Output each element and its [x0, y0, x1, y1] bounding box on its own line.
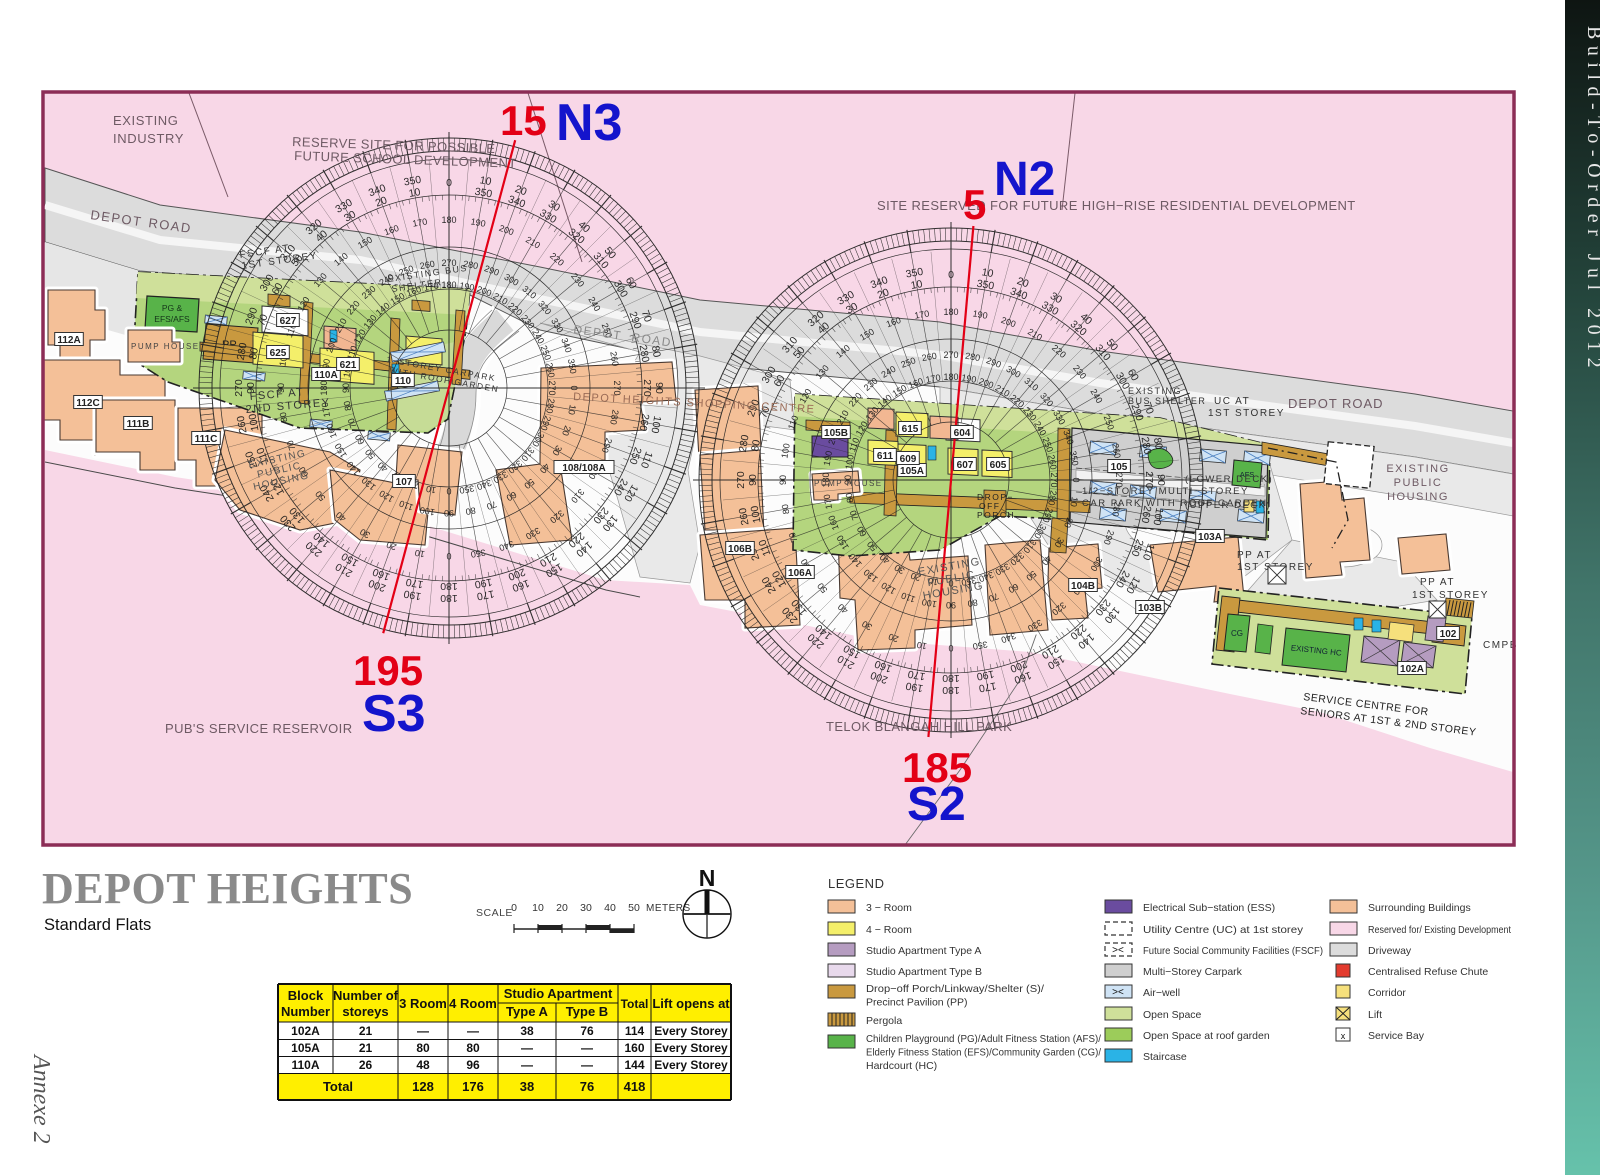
svg-text:Reserved for/ Existing Develop: Reserved for/ Existing Development: [1368, 924, 1511, 936]
svg-text:110: 110: [395, 376, 412, 387]
svg-text:96: 96: [466, 1058, 480, 1072]
svg-text:Standard Flats: Standard Flats: [44, 916, 151, 934]
svg-text:110A: 110A: [291, 1058, 319, 1072]
svg-text:Pergola: Pergola: [866, 1015, 902, 1027]
svg-text:10: 10: [532, 902, 544, 914]
svg-text:107: 107: [396, 477, 413, 488]
svg-text:Studio Apartment Type B: Studio Apartment Type B: [866, 966, 982, 978]
svg-text:105A: 105A: [900, 466, 924, 477]
svg-text:0: 0: [948, 269, 954, 281]
svg-text:106A: 106A: [788, 568, 812, 579]
svg-text:(LOWER DECK): (LOWER DECK): [1185, 474, 1273, 485]
svg-text:Utility Centre (UC) at 1st sto: Utility Centre (UC) at 1st storey: [1143, 924, 1304, 936]
svg-text:180: 180: [440, 592, 458, 604]
svg-text:Every Storey: Every Storey: [654, 1041, 728, 1055]
svg-text:605: 605: [990, 460, 1007, 471]
svg-text:Open Space: Open Space: [1143, 1009, 1202, 1021]
svg-text:PUB'S SERVICE RESERVOIR: PUB'S SERVICE RESERVOIR: [165, 721, 352, 736]
svg-text:105A: 105A: [291, 1041, 320, 1055]
svg-text:90: 90: [341, 383, 351, 393]
svg-text:Air−well: Air−well: [1143, 987, 1180, 999]
svg-text:270: 270: [943, 350, 958, 360]
svg-text:1/2−STOREY MULTI−STOREY: 1/2−STOREY MULTI−STOREY: [1082, 486, 1249, 497]
svg-text:50: 50: [628, 902, 640, 914]
svg-text:160: 160: [624, 1041, 644, 1055]
svg-text:storeys: storeys: [342, 1004, 388, 1019]
svg-text:PG &: PG &: [162, 303, 183, 313]
svg-text:LEGEND: LEGEND: [828, 876, 884, 891]
svg-text:PP AT: PP AT: [1420, 577, 1455, 588]
svg-text:10: 10: [910, 278, 924, 292]
svg-text:108/108A: 108/108A: [562, 463, 605, 474]
svg-text:76: 76: [580, 1079, 594, 1094]
svg-text:625: 625: [270, 348, 287, 359]
svg-text:Multi−Storey Carpark: Multi−Storey Carpark: [1143, 966, 1243, 978]
svg-text:5: 5: [963, 181, 986, 228]
svg-text:4 − Room: 4 − Room: [866, 924, 912, 936]
svg-text:111B: 111B: [127, 419, 150, 430]
svg-text:102A: 102A: [1400, 664, 1424, 675]
svg-text:106B: 106B: [728, 544, 752, 555]
svg-text:SITE RESERVED FOR FUTURE HIGH−: SITE RESERVED FOR FUTURE HIGH−RISE RESID…: [877, 198, 1356, 213]
svg-text:80: 80: [416, 1041, 430, 1055]
svg-text:SCALE: SCALE: [476, 907, 513, 919]
svg-text:PORCH: PORCH: [977, 510, 1015, 520]
svg-text:EXISTING: EXISTING: [113, 113, 178, 128]
svg-text:270: 270: [735, 471, 747, 489]
svg-text:Open Space at roof garden: Open Space at roof garden: [1143, 1030, 1270, 1042]
svg-text:90: 90: [444, 508, 454, 518]
svg-text:Hardcourt (HC): Hardcourt (HC): [866, 1060, 937, 1072]
svg-text:PUBLIC: PUBLIC: [1394, 477, 1443, 489]
svg-text:114: 114: [625, 1024, 645, 1038]
svg-text:103A: 103A: [1198, 532, 1222, 543]
svg-text:10: 10: [414, 548, 426, 560]
svg-text:ROAD: ROAD: [1342, 396, 1384, 411]
svg-text:Centralised Refuse Chute: Centralised Refuse Chute: [1368, 966, 1488, 978]
svg-text:144: 144: [624, 1058, 644, 1072]
svg-text:INDUSTRY: INDUSTRY: [113, 131, 184, 146]
svg-text:Staircase: Staircase: [1143, 1051, 1187, 1063]
svg-text:112C: 112C: [76, 398, 99, 409]
svg-text:EXISTING: EXISTING: [1386, 463, 1449, 475]
svg-text:Block: Block: [288, 988, 324, 1003]
svg-text:80: 80: [247, 347, 261, 361]
svg-text:180: 180: [441, 215, 456, 225]
svg-text:0: 0: [446, 486, 451, 496]
svg-text:EFS/AFS: EFS/AFS: [154, 314, 190, 324]
svg-text:x: x: [1341, 1031, 1346, 1041]
svg-text:80: 80: [967, 597, 979, 609]
svg-text:UC AT: UC AT: [1214, 396, 1250, 407]
svg-text:Studio Apartment Type A: Studio Apartment Type A: [866, 945, 981, 957]
svg-text:270: 270: [547, 380, 557, 395]
svg-text:180: 180: [942, 684, 960, 696]
svg-text:Driveway: Driveway: [1368, 945, 1412, 957]
svg-text:Type A: Type A: [506, 1004, 549, 1019]
svg-text:N2: N2: [994, 153, 1055, 206]
svg-text:—: —: [467, 1024, 479, 1038]
svg-text:80: 80: [465, 505, 477, 517]
svg-text:180: 180: [943, 372, 958, 382]
svg-text:604: 604: [954, 428, 971, 439]
svg-text:76: 76: [580, 1024, 594, 1038]
svg-text:40: 40: [604, 902, 616, 914]
svg-text:26: 26: [359, 1058, 373, 1072]
svg-text:Type B: Type B: [566, 1004, 608, 1019]
svg-text:Every Storey: Every Storey: [654, 1024, 728, 1038]
svg-text:80: 80: [780, 503, 792, 515]
svg-text:Studio Apartment: Studio Apartment: [504, 986, 613, 1001]
svg-text:HOUSING: HOUSING: [1387, 491, 1449, 503]
svg-text:10: 10: [566, 404, 578, 416]
svg-text:—: —: [521, 1058, 533, 1072]
svg-text:103B: 103B: [1138, 603, 1162, 614]
svg-text:S3: S3: [362, 685, 426, 743]
svg-text:1ST STOREY: 1ST STOREY: [1208, 408, 1285, 419]
svg-text:102A: 102A: [291, 1024, 320, 1038]
svg-text:EXISTING: EXISTING: [1128, 386, 1182, 396]
svg-text:PP AT: PP AT: [1237, 550, 1272, 561]
svg-text:10: 10: [1068, 496, 1080, 508]
svg-text:0: 0: [446, 177, 452, 189]
svg-text:Total: Total: [323, 1079, 353, 1094]
svg-text:Number of: Number of: [333, 988, 399, 1003]
svg-text:21: 21: [359, 1024, 373, 1038]
svg-text:609: 609: [900, 454, 917, 465]
svg-text:270: 270: [1049, 472, 1059, 487]
svg-text:38: 38: [520, 1024, 534, 1038]
svg-text:N3: N3: [556, 94, 622, 152]
svg-text:3 − Room: 3 − Room: [866, 902, 912, 914]
svg-text:Number: Number: [281, 1004, 330, 1019]
svg-text:—: —: [581, 1041, 593, 1055]
svg-text:90: 90: [653, 382, 665, 394]
svg-text:30: 30: [580, 902, 592, 914]
svg-text:Build-To-Order Jul 2012: Build-To-Order Jul 2012: [1583, 26, 1600, 374]
svg-text:48: 48: [416, 1058, 430, 1072]
svg-text:180: 180: [441, 280, 456, 290]
svg-text:15: 15: [500, 97, 547, 144]
svg-text:Future Social Community Facili: Future Social Community Facilities (FSCF…: [1143, 945, 1323, 957]
svg-text:104B: 104B: [1071, 581, 1095, 592]
svg-text:0: 0: [511, 902, 517, 914]
svg-text:180: 180: [440, 580, 458, 592]
svg-text:90: 90: [778, 475, 788, 485]
svg-text:Surrounding Buildings: Surrounding Buildings: [1368, 902, 1471, 914]
svg-text:90: 90: [1155, 474, 1167, 486]
svg-text:80: 80: [749, 439, 763, 453]
svg-text:Corridor: Corridor: [1368, 987, 1406, 999]
svg-text:0: 0: [569, 385, 579, 390]
svg-text:0: 0: [948, 643, 953, 653]
svg-text:105: 105: [1111, 462, 1128, 473]
svg-text:TELOK BLANGAH HILL PARK: TELOK BLANGAH HILL PARK: [826, 719, 1012, 734]
svg-text:Service Bay: Service Bay: [1368, 1030, 1425, 1042]
svg-text:102: 102: [1440, 629, 1457, 640]
svg-text:><: ><: [1112, 945, 1124, 956]
svg-text:611: 611: [877, 451, 894, 462]
svg-text:1ST STOREY: 1ST STOREY: [1412, 590, 1489, 601]
svg-text:Every Storey: Every Storey: [654, 1058, 728, 1072]
svg-text:176: 176: [462, 1079, 484, 1094]
svg-text:0: 0: [446, 551, 451, 561]
svg-text:10: 10: [916, 640, 928, 652]
svg-text:180: 180: [942, 672, 960, 684]
svg-text:Precinct Pavilion (PP): Precinct Pavilion (PP): [866, 997, 968, 1009]
svg-text:80: 80: [278, 411, 290, 423]
svg-text:110A: 110A: [314, 370, 337, 381]
svg-text:4 Room: 4 Room: [449, 996, 497, 1011]
svg-text:3 Room: 3 Room: [399, 996, 447, 1011]
svg-text:105B: 105B: [824, 428, 848, 439]
svg-text:80: 80: [342, 400, 354, 412]
svg-text:Drop−off Porch/Linkway/Shelter: Drop−off Porch/Linkway/Shelter (S)/: [866, 983, 1044, 995]
svg-text:S2: S2: [907, 778, 966, 831]
svg-text:Lift: Lift: [1368, 1009, 1382, 1021]
svg-text:—: —: [417, 1024, 429, 1038]
svg-text:10: 10: [425, 484, 437, 496]
svg-text:—: —: [521, 1041, 533, 1055]
svg-text:Total: Total: [621, 997, 649, 1011]
svg-text:N: N: [699, 865, 716, 891]
svg-text:Electrical Sub−station (ESS): Electrical Sub−station (ESS): [1143, 902, 1275, 914]
svg-text:DEPOT: DEPOT: [1288, 396, 1338, 411]
svg-text:Annexe 2: Annexe 2: [28, 1053, 54, 1144]
svg-text:90: 90: [946, 600, 956, 610]
svg-text:80: 80: [466, 1041, 480, 1055]
svg-text:180: 180: [943, 307, 958, 317]
svg-text:38: 38: [520, 1079, 534, 1094]
svg-text:PUMP HOUSE: PUMP HOUSE: [131, 342, 200, 351]
svg-text:—: —: [581, 1058, 593, 1072]
svg-text:PUMP HOUSE: PUMP HOUSE: [814, 479, 883, 488]
svg-text:128: 128: [412, 1079, 434, 1094]
svg-text:90: 90: [747, 474, 759, 486]
svg-text:607: 607: [957, 460, 974, 471]
svg-text:21: 21: [359, 1041, 373, 1055]
svg-text:Elderly Fitness Station (EFS)/: Elderly Fitness Station (EFS)/Community …: [866, 1047, 1101, 1059]
svg-text:20: 20: [556, 902, 568, 914]
svg-text:><: ><: [1112, 987, 1124, 998]
svg-text:10: 10: [408, 186, 422, 200]
svg-text:112A: 112A: [57, 335, 80, 346]
svg-text:270: 270: [233, 379, 245, 397]
svg-text:111C: 111C: [195, 434, 218, 445]
svg-text:CG: CG: [1231, 629, 1243, 638]
svg-text:418: 418: [624, 1079, 646, 1094]
svg-text:Children Playground (PG)/Adult: Children Playground (PG)/Adult Fitness S…: [866, 1033, 1101, 1045]
svg-text:(UPPER DECK): (UPPER DECK): [1185, 500, 1271, 511]
svg-text:80: 80: [844, 492, 856, 504]
svg-text:627: 627: [280, 316, 297, 327]
svg-text:DEPOT HEIGHTS: DEPOT HEIGHTS: [42, 864, 413, 913]
svg-text:621: 621: [340, 360, 357, 371]
svg-text:Lift opens at: Lift opens at: [652, 996, 730, 1011]
svg-text:0: 0: [1071, 477, 1081, 482]
svg-text:BUS SHELTER: BUS SHELTER: [1128, 396, 1206, 406]
svg-text:180: 180: [319, 380, 329, 395]
svg-text:615: 615: [902, 424, 919, 435]
